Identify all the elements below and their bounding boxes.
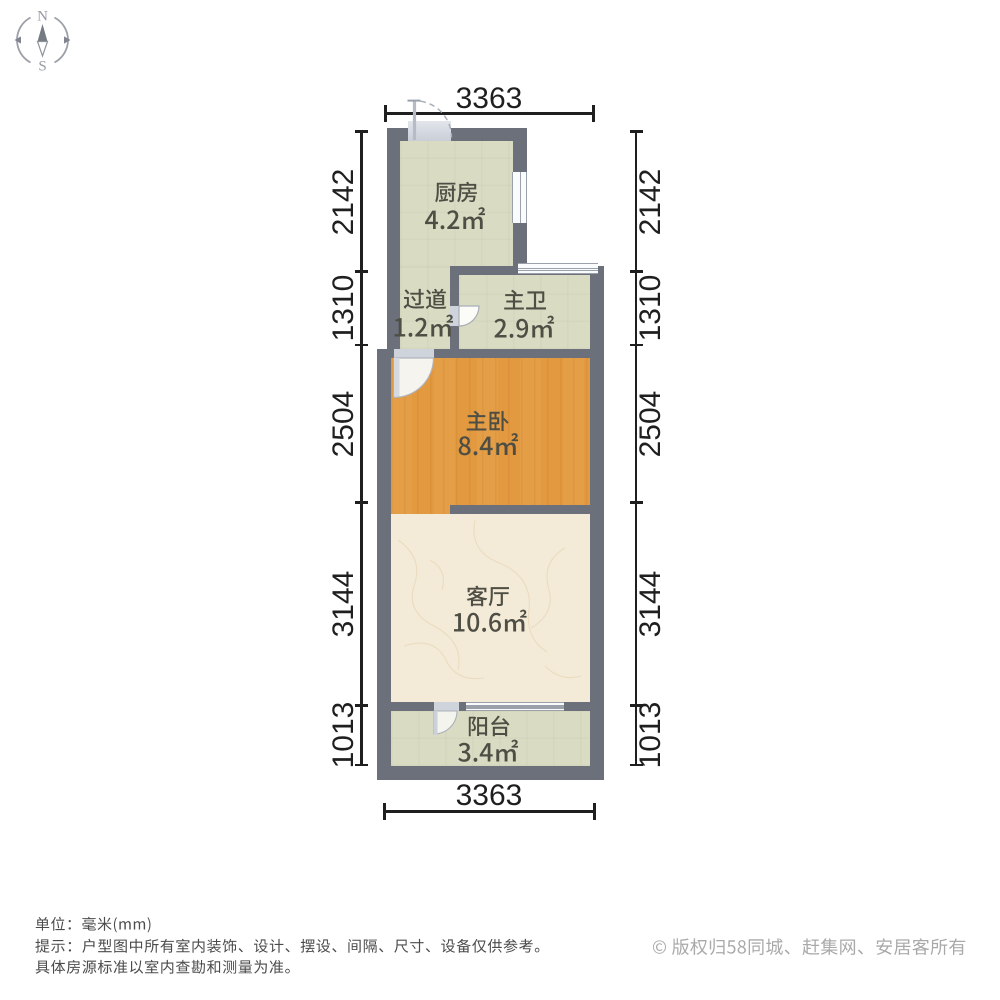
svg-text:N: N [37,9,48,25]
svg-text:S: S [38,59,46,75]
